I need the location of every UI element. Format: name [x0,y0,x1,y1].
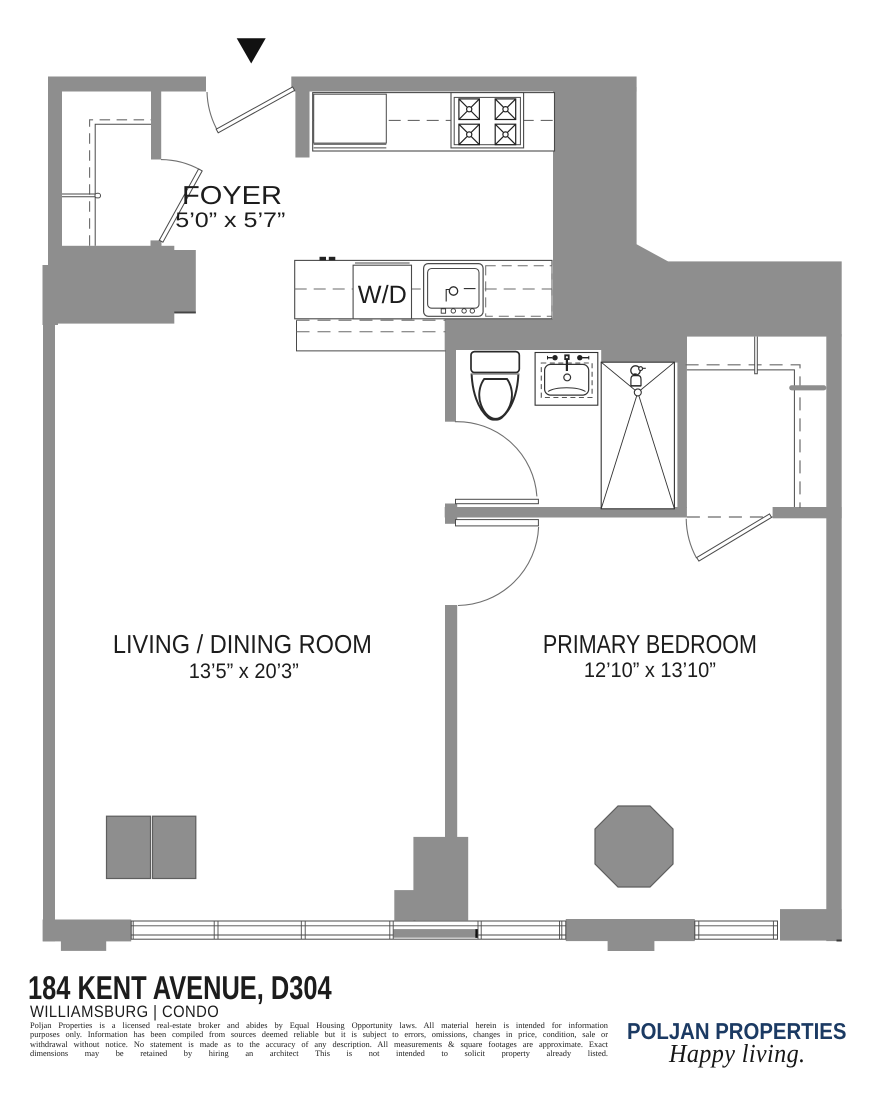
svg-text:13’5” x 20’3”: 13’5” x 20’3” [189,660,299,683]
svg-text:12’10” x 13’10”: 12’10” x 13’10” [584,659,716,682]
svg-text:FOYER: FOYER [182,180,282,210]
svg-text:W/D: W/D [358,281,407,309]
svg-text:LIVING / DINING ROOM: LIVING / DINING ROOM [113,629,372,659]
svg-text:5’0” x 5’7”: 5’0” x 5’7” [175,209,285,232]
svg-text:PRIMARY BEDROOM: PRIMARY BEDROOM [543,629,757,659]
